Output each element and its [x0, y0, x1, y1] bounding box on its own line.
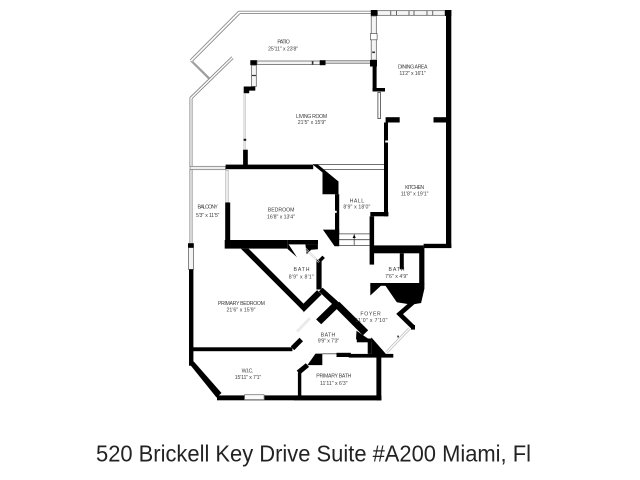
svg-text:11'11" x 6'3": 11'11" x 6'3": [320, 381, 348, 387]
svg-text:PATIO: PATIO: [277, 40, 290, 46]
svg-text:8'9" x 8'1": 8'9" x 8'1": [289, 274, 314, 280]
svg-text:KITCHEN: KITCHEN: [405, 185, 424, 191]
svg-text:5'3" x 11'5": 5'3" x 11'5": [196, 213, 220, 219]
svg-text:BALCONY: BALCONY: [198, 204, 219, 210]
svg-text:9'9" x 7'3": 9'9" x 7'3": [318, 339, 340, 345]
svg-text:25'11" x 23'8": 25'11" x 23'8": [268, 46, 298, 52]
svg-text:W.I.C.: W.I.C.: [242, 369, 254, 375]
svg-text:PRIMARY BEDROOM: PRIMARY BEDROOM: [218, 301, 265, 307]
svg-text:520 Brickell Key Drive Suite #: 520 Brickell Key Drive Suite #A200 Miami…: [96, 440, 531, 466]
svg-text:7'6" x 4'9": 7'6" x 4'9": [385, 274, 408, 280]
svg-text:21'6" x 15'9": 21'6" x 15'9": [227, 307, 256, 313]
svg-text:21'5" x 15'9": 21'5" x 15'9": [298, 120, 327, 126]
svg-text:11'0" x 7'10": 11'0" x 7'10": [355, 318, 387, 324]
svg-text:15'11" x 7'1": 15'11" x 7'1": [235, 375, 262, 381]
svg-text:8'9" x 18'0": 8'9" x 18'0": [343, 204, 370, 210]
svg-text:16'8" x 13'4": 16'8" x 13'4": [267, 214, 295, 220]
svg-text:11'8" x 19'1": 11'8" x 19'1": [401, 192, 429, 198]
svg-text:PRIMARY BATH: PRIMARY BATH: [316, 373, 351, 379]
svg-text:DINING AREA: DINING AREA: [398, 64, 428, 70]
svg-text:11'2" x 16'1": 11'2" x 16'1": [399, 71, 425, 77]
svg-text:FOYER: FOYER: [360, 311, 381, 317]
svg-text:BATH: BATH: [321, 332, 336, 338]
svg-text:BATH: BATH: [294, 267, 310, 273]
svg-text:BATH: BATH: [389, 267, 405, 273]
svg-text:BEDROOM: BEDROOM: [268, 208, 295, 214]
